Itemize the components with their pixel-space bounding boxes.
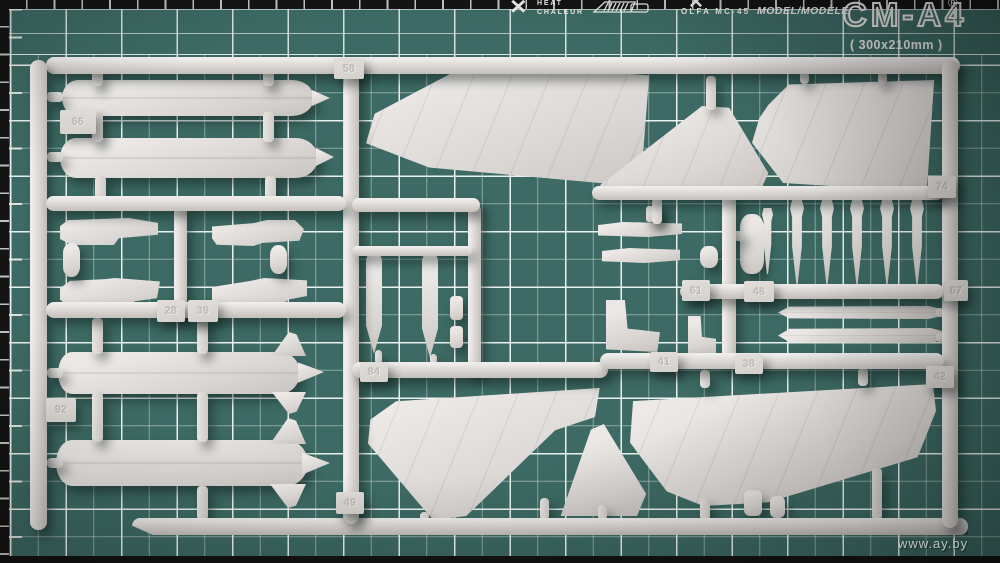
sprue-runner-bottom [132,518,968,535]
fuel-tank-2-tail-cone [316,148,334,166]
part-number-tag-92: 92 [46,398,76,422]
small-part-mid-1 [450,296,463,320]
sprue-crossbar-right-middle [680,284,944,299]
small-cylinder-part-left [63,243,80,277]
photo-canvas: ✕ HEAT CHALEUR ✕ OLFA MC-45 MODEL/MODÈLE… [0,0,1000,563]
fuel-tank-1-tail-cone [312,90,330,106]
sprue-runner-left [30,60,47,530]
part-number-tag-48: 48 [744,281,774,302]
small-rocket-part-4 [880,200,894,284]
cup-part [700,246,718,268]
tank-4-fin-lower [266,484,306,508]
sprue-gate [197,486,208,520]
sprue-gate [92,318,103,354]
part-number-tag-28: 28 [157,300,185,322]
small-rocket-part-a [762,208,773,274]
tank-3-tail-cone [298,360,324,384]
watermark-text: www.ay.by [898,536,968,551]
tank-3-fin-lower [268,392,306,414]
sprue-gate [700,498,710,520]
small-rocket-part-1 [790,200,804,284]
fuel-tank-part-4 [56,440,308,486]
part-number-tag-42: 42 [926,366,954,388]
bracket-part-1 [606,300,660,352]
part-number-tag-39: 39 [188,300,218,322]
sprue-gate [197,392,208,442]
missile-part-horizontal-2 [778,328,942,343]
pylon-part-2 [212,220,304,246]
sprue-gate [706,76,716,110]
sprue-gate [197,318,208,354]
sprue-gate [47,458,63,468]
sprue-crossbar-mid-upper [352,198,480,212]
part-number-tag-41: 41 [650,352,678,372]
part-number-tag-61: 61 [682,280,710,301]
sprue-gate [263,112,274,142]
fuel-tank-part-2 [60,138,318,178]
part-number-tag-74: 74 [928,176,956,198]
sprue-gate [47,152,63,162]
rocket-part-1 [366,252,382,354]
wing-panel-part-top-middle [366,60,652,188]
sprue-gate [540,498,549,520]
intake-ramp-part-2 [602,248,680,263]
sprue-crossbar-left-upper [46,196,346,211]
sprue-rocket-hanger-bar [352,246,472,256]
sprue-gate [92,392,103,442]
sprue-gate [652,198,662,224]
part-number-tag-66: 66 [60,110,96,134]
model-kit-sprue: 58 66 28 39 92 49 84 61 48 41 38 74 67 4… [0,0,1000,563]
small-rocket-part-2 [820,200,834,284]
fuel-tank-part-3 [58,352,300,394]
tiny-part-1 [744,490,762,516]
sprue-gate [872,468,882,520]
sprue-gate [858,368,868,386]
part-number-tag-84: 84 [360,362,388,382]
rocket-part-2 [422,252,438,358]
sprue-runner-middle [344,62,359,524]
bracket-part-2 [688,316,716,354]
sprue-crossbar-right-upper [592,186,944,200]
sprue-runner-mid-vertical [468,204,481,376]
cylinder-dome-part [740,214,764,274]
sprue-gate [598,505,607,520]
small-rocket-part-5 [910,200,924,284]
sprue-runner-right-vertical [722,192,736,369]
part-number-tag-49: 49 [336,492,364,514]
sprue-runner-top [46,57,960,74]
small-rocket-part-3 [850,200,864,284]
small-cylinder-part-right [270,245,287,274]
sprue-gate [47,368,63,378]
small-part-mid-2 [450,326,463,348]
part-number-tag-38: 38 [735,354,763,374]
part-number-tag-58: 58 [334,58,364,79]
sprue-crossbar-mid-lower [352,362,608,378]
tiny-part-2 [770,496,785,518]
sprue-gate [47,92,63,102]
missile-part-horizontal-1 [778,306,940,319]
pylon-part-1 [60,218,158,245]
sprue-gate [700,370,710,388]
intake-ramp-part-1 [598,222,682,237]
part-number-tag-67: 67 [944,280,968,301]
wing-panel-part-top-right [752,80,936,192]
wing-panel-part-bottom-right [630,384,936,506]
